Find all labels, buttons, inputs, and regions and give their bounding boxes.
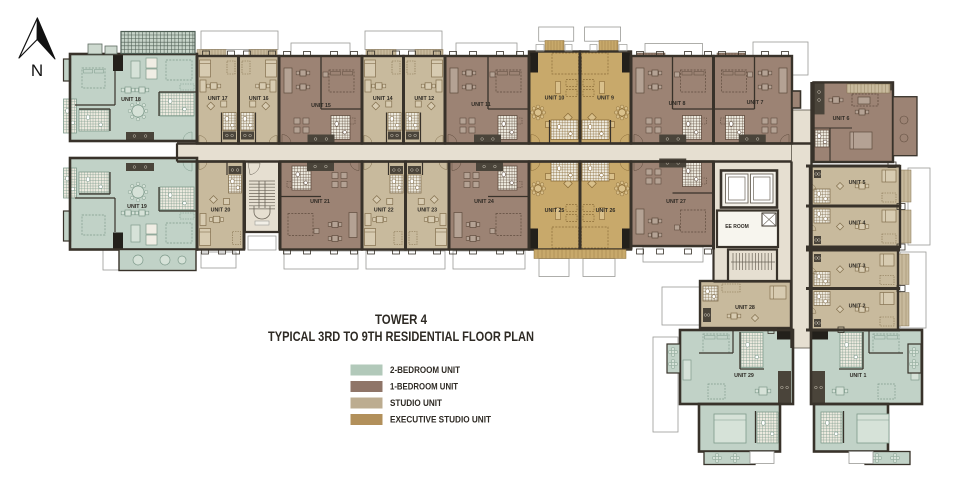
svg-text:UNIT 27: UNIT 27	[666, 199, 686, 205]
svg-text:UNIT 14: UNIT 14	[373, 96, 393, 102]
svg-text:UNIT 1: UNIT 1	[850, 373, 867, 379]
svg-text:UNIT 7: UNIT 7	[747, 100, 764, 106]
svg-text:N: N	[31, 61, 43, 80]
svg-text:UNIT 18: UNIT 18	[121, 97, 141, 103]
svg-text:1-BEDROOM UNIT: 1-BEDROOM UNIT	[390, 382, 458, 392]
svg-text:UNIT 29: UNIT 29	[734, 373, 754, 379]
svg-text:UNIT 9: UNIT 9	[597, 96, 614, 102]
svg-text:UNIT 21: UNIT 21	[310, 199, 330, 205]
svg-text:TOWER 4: TOWER 4	[375, 311, 427, 327]
svg-text:STUDIO UNIT: STUDIO UNIT	[390, 398, 442, 408]
svg-text:UNIT 10: UNIT 10	[545, 96, 565, 102]
svg-text:UNIT 8: UNIT 8	[669, 101, 686, 107]
svg-text:UNIT 5: UNIT 5	[849, 180, 866, 186]
svg-text:EXECUTIVE STUDIO UNIT: EXECUTIVE STUDIO UNIT	[390, 415, 491, 425]
svg-text:UNIT 24: UNIT 24	[474, 199, 494, 205]
svg-text:UNIT 23: UNIT 23	[417, 207, 437, 213]
svg-text:UNIT 11: UNIT 11	[471, 102, 490, 108]
svg-text:UNIT 12: UNIT 12	[414, 96, 434, 102]
svg-text:2-BEDROOM UNIT: 2-BEDROOM UNIT	[390, 365, 460, 375]
svg-text:UNIT 6: UNIT 6	[833, 116, 850, 122]
svg-text:UNIT 26: UNIT 26	[596, 208, 616, 214]
svg-text:UNIT 17: UNIT 17	[208, 96, 228, 102]
svg-text:UNIT 16: UNIT 16	[249, 96, 269, 102]
svg-text:UNIT 3: UNIT 3	[849, 263, 866, 269]
svg-text:UNIT 19: UNIT 19	[127, 204, 147, 210]
svg-text:UNIT 25: UNIT 25	[545, 208, 565, 214]
svg-text:EE ROOM: EE ROOM	[725, 224, 749, 230]
svg-text:UNIT 28: UNIT 28	[735, 305, 755, 311]
svg-text:UNIT 2: UNIT 2	[849, 303, 866, 309]
svg-text:UNIT 22: UNIT 22	[374, 207, 394, 213]
svg-text:UNIT 4: UNIT 4	[849, 221, 866, 227]
svg-text:UNIT 20: UNIT 20	[211, 207, 231, 213]
svg-text:TYPICAL 3RD TO 9TH RESIDENTIAL: TYPICAL 3RD TO 9TH RESIDENTIAL FLOOR PLA…	[268, 328, 534, 344]
svg-text:UNIT 15: UNIT 15	[311, 103, 331, 109]
